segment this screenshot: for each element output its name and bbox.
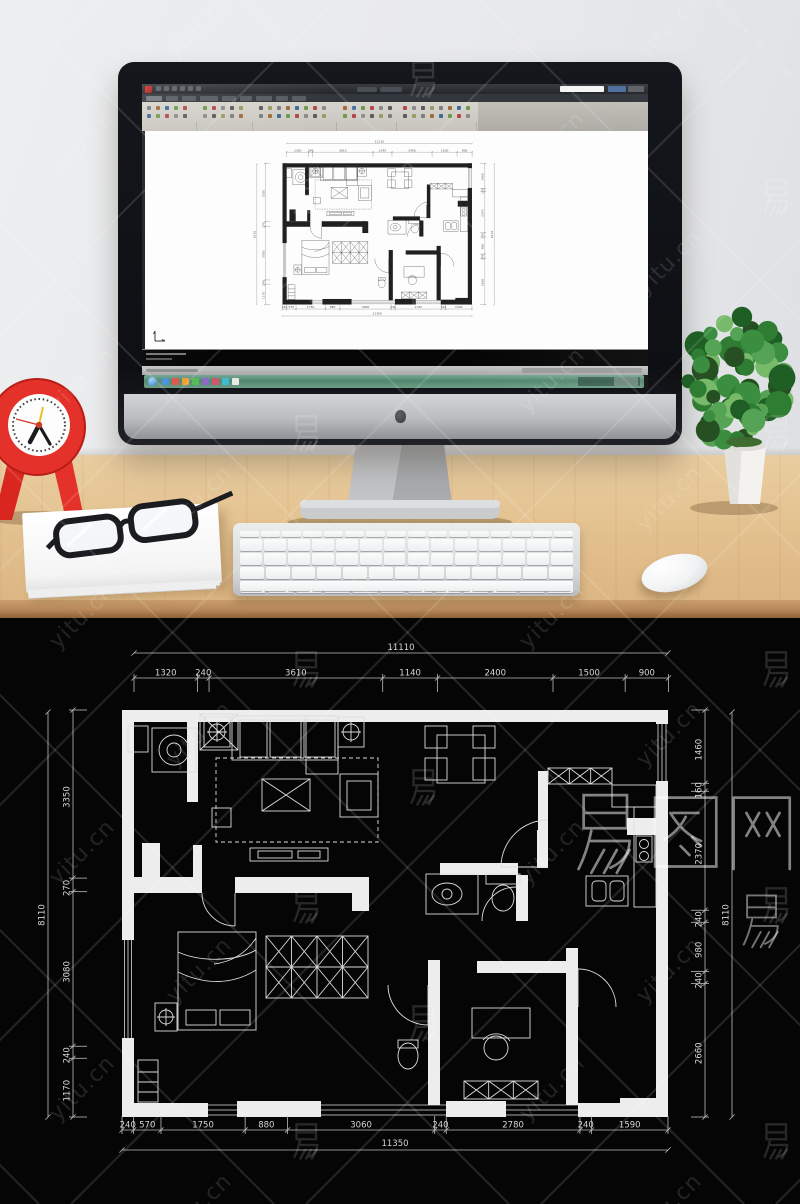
svg-text:980: 980 (695, 942, 705, 958)
svg-text:240: 240 (481, 254, 485, 260)
eyeglasses (40, 484, 250, 574)
svg-text:570: 570 (139, 1121, 155, 1131)
svg-text:240: 240 (120, 1121, 136, 1131)
svg-text:11110: 11110 (375, 139, 384, 143)
svg-text:11110: 11110 (387, 643, 414, 653)
cad-canvas: 1320240361011402400150090024057017508803… (142, 131, 648, 349)
ucs-axis-icon (153, 327, 169, 343)
svg-text:2780: 2780 (414, 305, 422, 309)
svg-text:2370: 2370 (481, 209, 485, 217)
svg-text:1460: 1460 (481, 173, 485, 181)
svg-text:3610: 3610 (339, 148, 347, 152)
windows-taskbar (144, 375, 644, 388)
svg-text:1590: 1590 (455, 305, 463, 309)
svg-text:880: 880 (330, 305, 336, 309)
autocad-logo-icon (145, 86, 152, 93)
svg-text:3080: 3080 (261, 250, 265, 258)
imac: 1320240361011402400150090024057017508803… (118, 62, 682, 445)
cad-titlebar (142, 84, 648, 94)
windows-start-icon (148, 377, 157, 386)
svg-text:1460: 1460 (695, 739, 705, 761)
svg-text:2370: 2370 (695, 843, 705, 865)
titlebar-doc-pill2 (380, 87, 402, 92)
svg-text:240: 240 (195, 669, 211, 679)
svg-text:240: 240 (432, 1121, 448, 1131)
svg-text:900: 900 (462, 148, 468, 152)
floorplan-svg: 1320240361011402400150090024057017508803… (0, 618, 800, 1204)
svg-text:240: 240 (390, 305, 396, 309)
svg-text:1170: 1170 (63, 1080, 73, 1102)
svg-text:1750: 1750 (307, 305, 315, 309)
svg-text:2660: 2660 (481, 279, 485, 287)
potted-plant (672, 296, 800, 522)
svg-text:1500: 1500 (441, 148, 449, 152)
imac-stand (280, 430, 520, 530)
svg-text:240: 240 (282, 305, 288, 309)
titlebar-window-buttons (628, 86, 644, 92)
floorplan-screen-svg: 1320240361011402400150090024057017508803… (145, 131, 648, 349)
svg-text:240: 240 (261, 280, 265, 286)
svg-text:240: 240 (308, 148, 314, 152)
svg-text:3610: 3610 (285, 669, 307, 679)
svg-text:2660: 2660 (695, 1042, 705, 1064)
svg-text:1590: 1590 (619, 1121, 641, 1131)
svg-text:8110: 8110 (38, 904, 48, 926)
svg-text:8110: 8110 (490, 231, 494, 239)
svg-text:1140: 1140 (379, 148, 387, 152)
svg-text:160: 160 (695, 782, 705, 798)
svg-text:1170: 1170 (261, 292, 265, 300)
svg-text:1320: 1320 (155, 669, 177, 679)
svg-text:270: 270 (63, 880, 73, 896)
imac-chin (124, 394, 676, 439)
svg-text:240: 240 (63, 1047, 73, 1063)
svg-text:980: 980 (481, 244, 485, 250)
desk-photo-section: 1320240361011402400150090024057017508803… (0, 0, 800, 618)
svg-text:3060: 3060 (350, 1121, 372, 1131)
svg-text:1750: 1750 (192, 1121, 214, 1131)
svg-text:3080: 3080 (63, 961, 73, 983)
svg-text:3350: 3350 (261, 190, 265, 198)
svg-text:8110: 8110 (253, 231, 257, 239)
svg-text:240: 240 (578, 1121, 594, 1131)
taskbar-clock (614, 377, 638, 386)
imac-screen: 1320240361011402400150090024057017508803… (142, 84, 648, 388)
titlebar-search-box (560, 86, 604, 92)
svg-text:1500: 1500 (578, 669, 600, 679)
apple-logo-icon (395, 410, 406, 423)
svg-text:240: 240 (695, 972, 705, 988)
keyboard-keys (240, 529, 573, 590)
svg-text:880: 880 (258, 1121, 274, 1131)
svg-text:1140: 1140 (399, 669, 421, 679)
svg-text:240: 240 (441, 305, 447, 309)
titlebar-doc-pill (357, 87, 377, 92)
svg-text:8110: 8110 (722, 904, 732, 926)
svg-text:11350: 11350 (381, 1139, 408, 1149)
svg-text:240: 240 (481, 233, 485, 239)
svg-text:1320: 1320 (294, 148, 302, 152)
svg-text:3350: 3350 (63, 786, 73, 808)
svg-text:2400: 2400 (408, 148, 416, 152)
cad-section: 1320240361011402400150090024057017508803… (0, 618, 800, 1204)
svg-text:160: 160 (481, 188, 485, 194)
apple-keyboard (233, 523, 580, 596)
cad-command-line (142, 349, 648, 367)
cad-menubar (142, 94, 648, 102)
cad-ribbon-empty (478, 102, 648, 131)
svg-text:3060: 3060 (362, 305, 370, 309)
svg-text:11350: 11350 (373, 312, 382, 316)
svg-text:2780: 2780 (502, 1121, 524, 1131)
titlebar-signin-button (608, 86, 626, 92)
cad-status-bar (142, 366, 648, 375)
svg-text:570: 570 (288, 305, 294, 309)
stock-image-composite: 1320240361011402400150090024057017508803… (0, 0, 800, 1204)
desk-front-edge (0, 600, 800, 618)
svg-text:270: 270 (261, 222, 265, 228)
svg-text:2400: 2400 (484, 669, 506, 679)
svg-text:240: 240 (695, 911, 705, 927)
svg-text:900: 900 (639, 669, 655, 679)
